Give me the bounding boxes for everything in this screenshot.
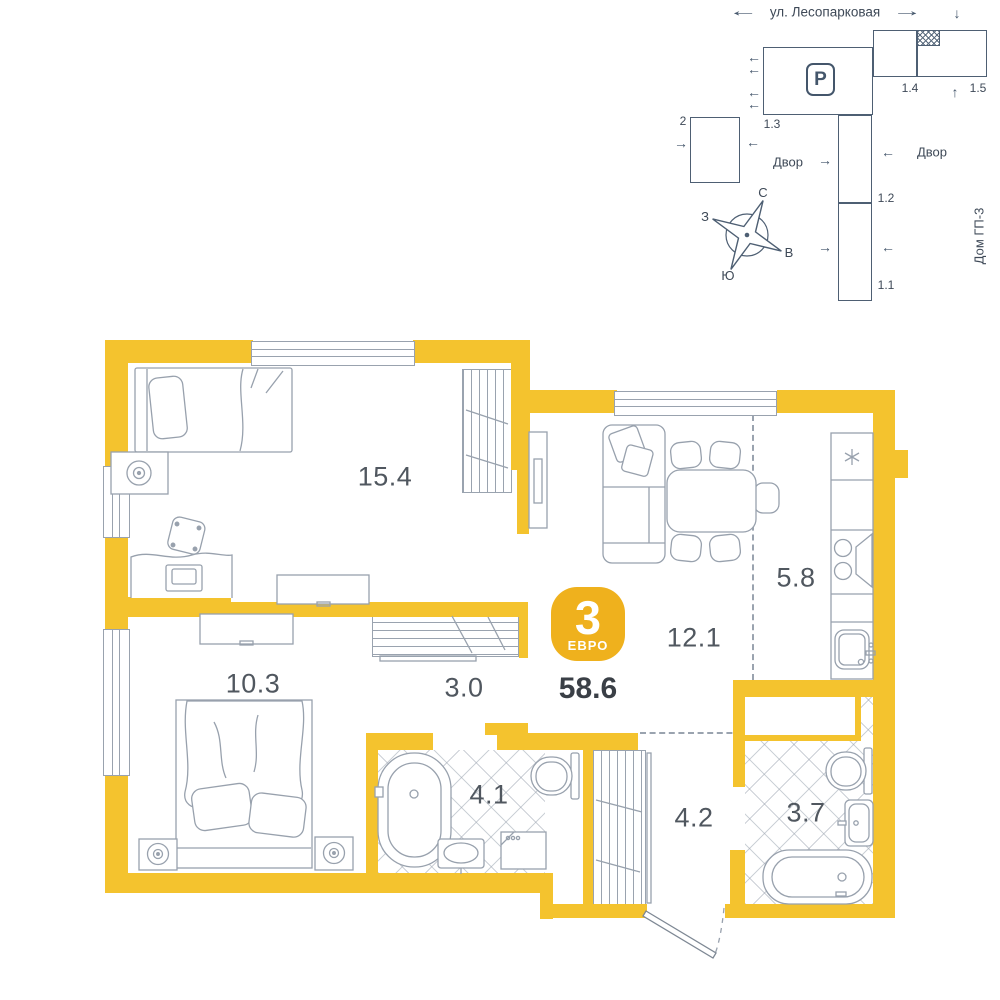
tv-unit [529,432,547,528]
wall-segment [540,904,647,918]
sofa [603,425,665,563]
wall-segment [229,602,528,617]
total-area-label: 58.6 [559,672,617,706]
nightstand-lamp [315,837,353,870]
block-label-14: 1.4 [902,81,919,95]
highlighted-section [917,30,940,46]
arrow-right-icon: → [818,240,832,254]
layout-type: ЕВРО [568,638,609,653]
street-label: ул. Лесопарковая [770,5,880,20]
parking-icon: P [806,63,835,96]
area-label-bedroom: 10.3 [226,669,281,700]
arrow-up-icon: ↑ [952,85,959,99]
arrow-left-icon: ← [881,240,895,254]
arrow-right-icon: → [892,4,922,20]
block-label-13: 1.3 [764,117,781,131]
area-label-bathroom2: 3.7 [786,798,825,829]
wall-segment [105,873,553,893]
freezer-icon [845,449,859,465]
hall-zone-divider [640,732,742,734]
bed-double [176,700,312,868]
arrow-down-icon: ↓ [954,6,961,20]
map-building-2 [690,117,740,183]
throw-pillow [621,444,654,477]
area-label-bathroom: 4.1 [469,780,508,811]
compass-south: Ю [721,268,734,283]
bathroom-floor-tiles [378,750,545,873]
wall-segment [733,680,895,697]
arrow-right-icon: → [818,153,832,167]
apartment-badge: 3 ЕВРО [551,587,625,661]
area-label-kitchen: 5.8 [776,563,815,594]
dresser [200,614,293,645]
pillow [248,792,307,838]
rooms-count: 3 [575,597,601,639]
stove-burner [835,563,852,580]
wall-segment [730,850,745,908]
wardrobe-room [462,369,512,493]
yard-label-left: Двор [773,155,803,170]
area-label-corridor: 3.0 [444,673,483,704]
floorplan-canvas: ул. Лесопарковая ← → P 1.3 1.4 1.5 2 1.2… [0,0,1000,1000]
house-label: Дом ГП-3 [972,208,987,265]
wall-segment [366,733,433,750]
window [103,629,130,776]
yard-label-right: Двор [917,145,947,160]
nightstand-lamp [139,839,177,870]
site-map: ул. Лесопарковая ← → P 1.3 1.4 1.5 2 1.2… [0,0,1000,320]
stove-burner [835,540,852,557]
wall-segment [105,363,128,466]
wall-segment [873,390,895,918]
wardrobe-corridor [372,613,519,657]
area-label-room: 15.4 [358,462,413,493]
arrow-left-icon: ← [747,62,761,76]
block-label-11: 1.1 [878,278,895,292]
dining-set [667,441,779,563]
area-label-hallway: 4.2 [674,803,713,834]
kitchen-sink [835,630,875,669]
arrow-left-icon: ← [728,4,758,20]
area-label-living: 12.1 [667,623,722,654]
compass-east: В [785,245,794,260]
wardrobe-hallway [592,750,646,905]
vent-duct [739,697,861,741]
block-label-12: 1.2 [878,191,895,205]
arrow-left-icon: ← [881,145,895,159]
dining-table [667,470,756,532]
compass-west: З [701,209,709,224]
window [251,341,415,366]
wall-segment [497,733,638,750]
block-label-15: 1.5 [970,81,987,95]
compass-rose: С В Ю З [687,175,807,295]
entry-door [643,908,724,958]
wall-segment [105,340,253,363]
compass-north: С [758,185,767,200]
wall-segment [583,750,593,905]
bed-single [135,368,292,452]
wall-segment [733,697,745,787]
desk-chair [131,516,232,598]
kitchen-counter [831,433,875,679]
wall-segment [105,597,231,617]
map-tower-divider [838,202,872,204]
throw-pillow [608,425,646,463]
wall-segment [517,390,617,413]
wall-segment [517,470,529,534]
pillow [190,782,253,832]
window [614,391,777,416]
kitchen-zone-divider [752,415,754,680]
window [103,466,130,538]
wall-segment [519,602,528,658]
wall-segment [725,904,895,918]
arrow-left-icon: ← [747,97,761,111]
arrow-left-icon: ← [746,135,760,149]
arrow-right-icon: → [674,136,688,150]
hood [856,534,872,587]
map-building-tower [838,115,872,301]
wall-segment [366,733,378,893]
block-label-2: 2 [680,114,687,128]
wall-segment [895,450,908,478]
